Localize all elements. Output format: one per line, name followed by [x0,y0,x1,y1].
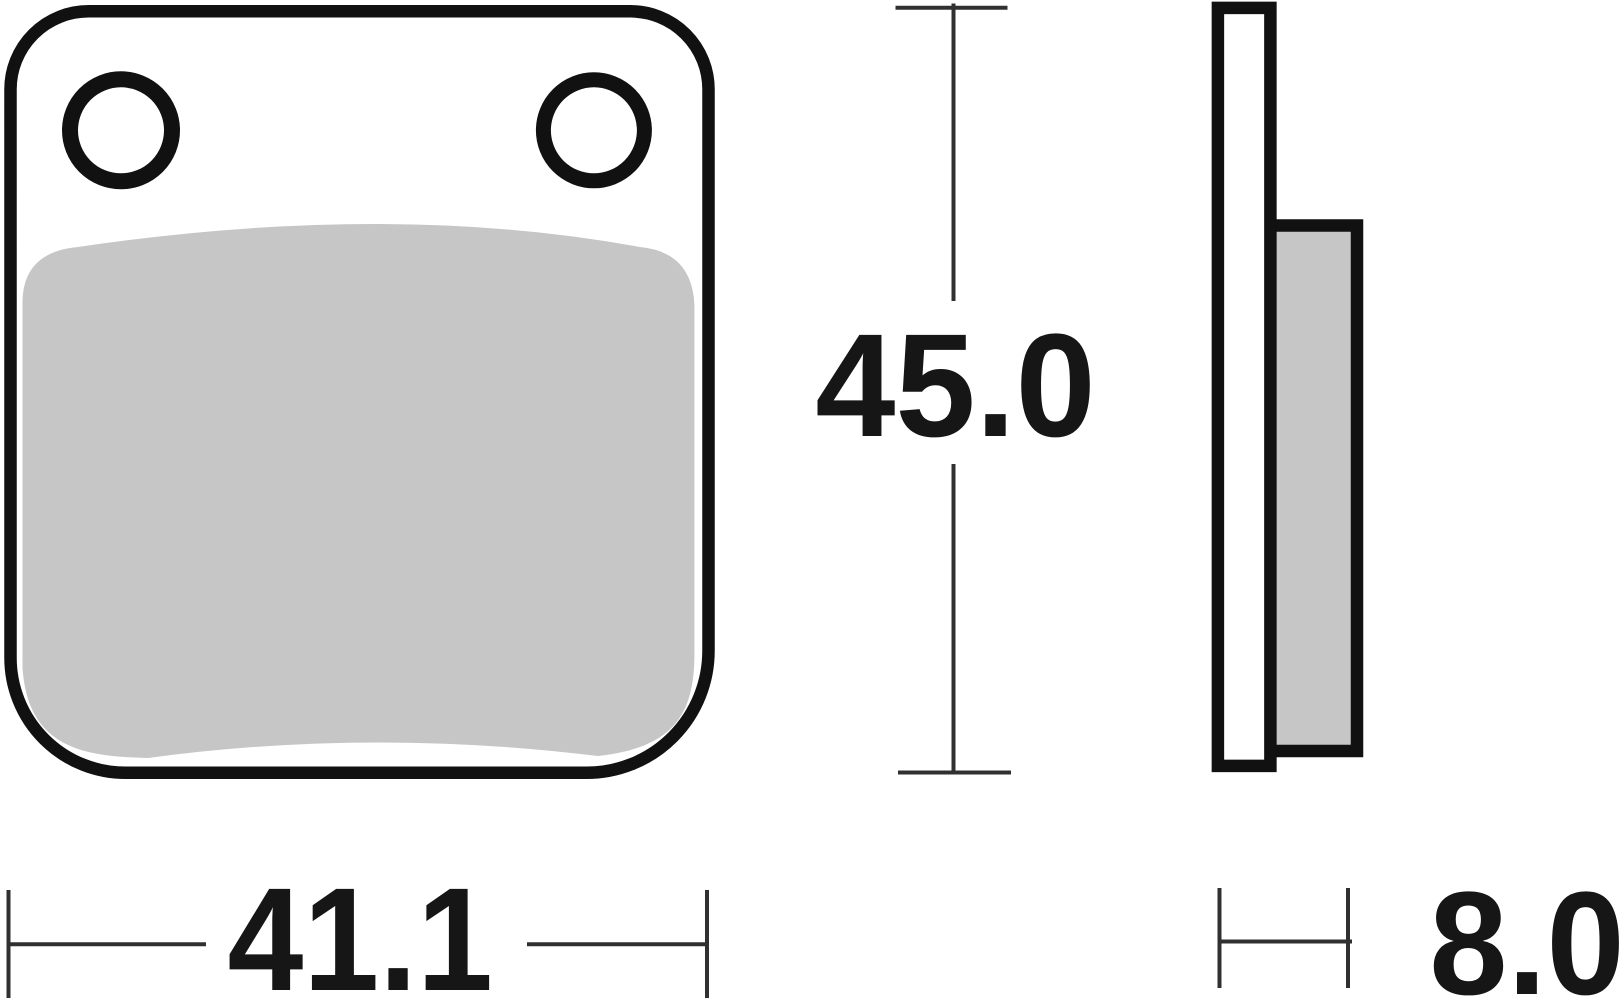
svg-text:45.0: 45.0 [815,303,1095,468]
svg-text:8.0: 8.0 [1429,862,1623,1000]
svg-text:41.1: 41.1 [228,858,493,1000]
